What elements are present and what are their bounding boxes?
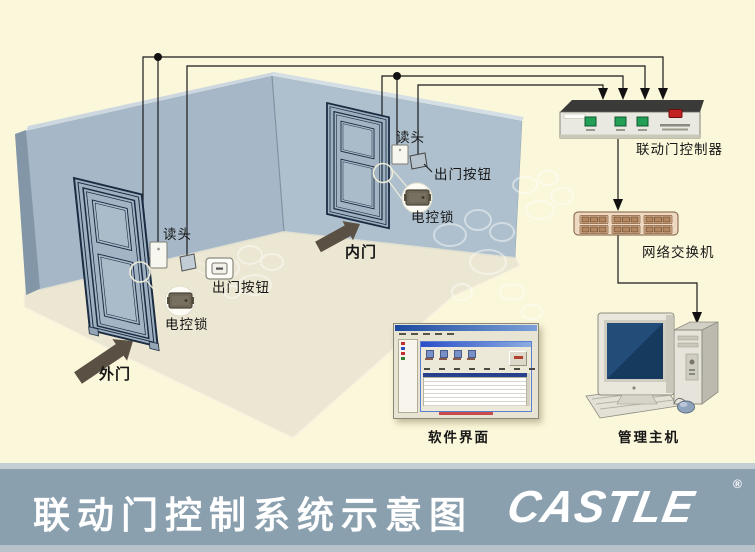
software-window-tree-panel: [398, 339, 418, 413]
software-window-menubar: [396, 332, 454, 337]
inner-reader-icon: [392, 145, 408, 164]
host-label: 管理主机: [618, 429, 680, 445]
footer-bottom-strip: [0, 545, 755, 552]
network-switch-device: [574, 212, 678, 235]
controller-label: 联动门控制器: [636, 142, 723, 157]
tower-icon: [674, 322, 718, 404]
software-window: [393, 323, 539, 419]
inner-exit-button-label: 出门按钮: [434, 167, 492, 182]
inner-lock-icon: [404, 190, 431, 205]
host-computer: [586, 313, 718, 418]
outer-door-label: 外门: [98, 365, 131, 383]
inner-lock-label: 电控锁: [411, 210, 455, 225]
registered-trademark-icon: ®: [733, 477, 742, 491]
outer-exit-button-zoom-icon: [206, 258, 233, 279]
inner-door-label: 内门: [345, 243, 377, 261]
software-label: 软件界面: [428, 429, 490, 445]
page-title: 联动门控制系统示意图: [33, 485, 473, 539]
switch-label: 网络交换机: [642, 244, 715, 260]
software-column-headers: [424, 368, 535, 370]
outer-lock-label: 电控锁: [165, 317, 209, 332]
software-action-button: [509, 351, 527, 366]
software-scrollbar: [527, 373, 530, 406]
monitor-icon: [598, 313, 674, 404]
room-scene: 读头 出门按钮 电控锁 外门 读头 出门按钮 电控锁 内门 联动门控制器 网络交…: [0, 0, 755, 463]
outer-reader-icon: [150, 242, 167, 268]
brand-logo: CASTLE: [503, 481, 698, 533]
inner-reader-label: 读头: [396, 130, 425, 145]
controller-power-switch: [669, 110, 682, 118]
diagram-page: 读头 出门按钮 电控锁 外门 读头 出门按钮 电控锁 内门 联动门控制器 网络交…: [0, 0, 755, 552]
outer-lock-icon: [167, 293, 194, 308]
inner-door: [327, 103, 389, 228]
controller-device: [560, 100, 704, 138]
software-inner-titlebar: [421, 342, 531, 347]
outer-exit-button-label: 出门按钮: [212, 280, 270, 295]
inner-exit-button-icon: [410, 153, 427, 169]
software-status-text: [439, 412, 493, 415]
software-inner-dialog: [420, 341, 532, 412]
outer-exit-button-icon: [180, 254, 196, 271]
software-record-list: [423, 377, 527, 406]
outer-reader-label: 读头: [163, 227, 192, 242]
footer-bar: 联动门控制系统示意图 CASTLE ®: [0, 463, 755, 552]
software-window-titlebar: [395, 325, 537, 331]
